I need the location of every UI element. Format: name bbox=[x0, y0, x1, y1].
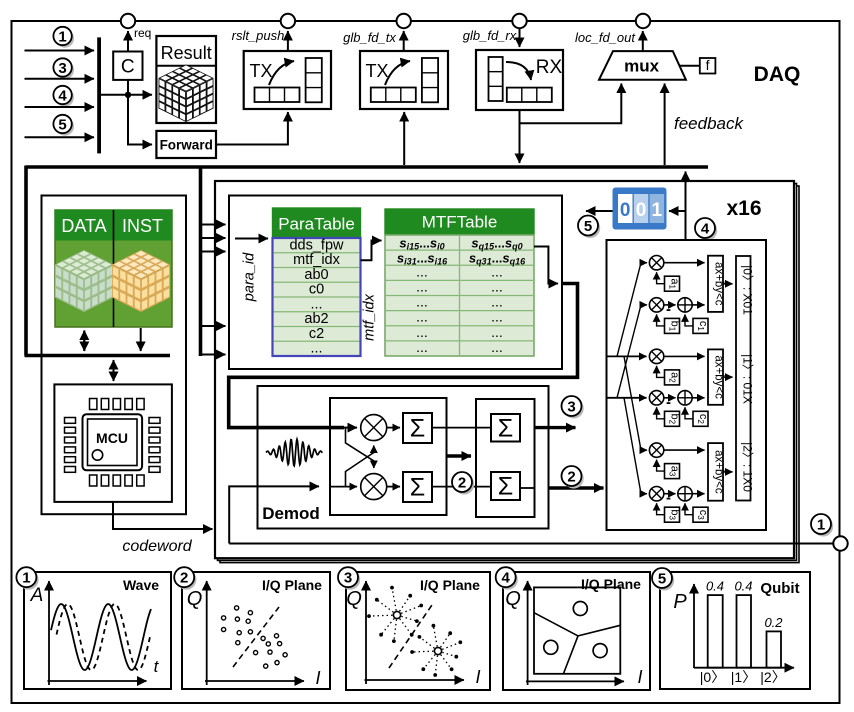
svg-text:...: ... bbox=[416, 263, 428, 279]
svg-text:ax+by<c: ax+by<c bbox=[713, 450, 725, 494]
svg-text:ax+by<c: ax+by<c bbox=[713, 355, 725, 399]
svg-text:Σ: Σ bbox=[410, 474, 425, 502]
svg-text:2: 2 bbox=[180, 570, 188, 587]
svg-text:ParaTable: ParaTable bbox=[278, 215, 355, 234]
svg-text:mux: mux bbox=[624, 57, 660, 76]
svg-text:I/Q Plane: I/Q Plane bbox=[581, 576, 641, 592]
svg-text:|0〉: |0〉 bbox=[700, 669, 725, 685]
svg-text:1: 1 bbox=[22, 570, 30, 587]
svg-text:codeword: codeword bbox=[122, 538, 192, 555]
svg-text:4: 4 bbox=[58, 87, 67, 104]
svg-text:Result: Result bbox=[161, 43, 212, 63]
svg-text:3: 3 bbox=[567, 398, 575, 415]
svg-text:f: f bbox=[706, 57, 710, 73]
svg-text:5: 5 bbox=[658, 570, 666, 587]
svg-text:...: ... bbox=[416, 294, 428, 310]
svg-text:Wave: Wave bbox=[123, 577, 159, 593]
svg-text:C: C bbox=[121, 57, 135, 78]
svg-text:I: I bbox=[315, 668, 320, 688]
svg-text:Q: Q bbox=[505, 588, 521, 610]
svg-text:2: 2 bbox=[567, 468, 575, 485]
svg-text:para_id: para_id bbox=[242, 252, 258, 302]
svg-text:DATA: DATA bbox=[61, 216, 106, 236]
svg-text:Σ: Σ bbox=[410, 415, 425, 443]
svg-text:c0: c0 bbox=[309, 282, 324, 298]
svg-text:rslt_push: rslt_push bbox=[232, 28, 285, 43]
svg-text:Demod: Demod bbox=[262, 504, 320, 523]
svg-text:glb_fd_tx: glb_fd_tx bbox=[343, 30, 396, 45]
svg-text:5: 5 bbox=[58, 116, 66, 133]
svg-text:1: 1 bbox=[58, 28, 66, 45]
svg-text:1: 1 bbox=[817, 516, 825, 533]
svg-text:DAQ: DAQ bbox=[754, 63, 801, 86]
svg-text:|2〉: 1X0: |2〉: 1X0 bbox=[740, 442, 754, 492]
svg-text:Q: Q bbox=[346, 588, 362, 610]
svg-text:x16: x16 bbox=[726, 197, 761, 220]
svg-text:0.2: 0.2 bbox=[764, 615, 783, 630]
svg-text:5: 5 bbox=[584, 218, 592, 235]
svg-text:TX: TX bbox=[365, 61, 388, 81]
svg-text:mtf_idx: mtf_idx bbox=[362, 293, 378, 340]
svg-text:0.4: 0.4 bbox=[734, 579, 752, 594]
svg-text:3: 3 bbox=[344, 570, 352, 587]
svg-text:4: 4 bbox=[502, 570, 511, 587]
svg-text:1: 1 bbox=[652, 200, 663, 221]
svg-text:...: ... bbox=[491, 294, 503, 310]
svg-text:0.4: 0.4 bbox=[706, 579, 724, 594]
svg-text:-: - bbox=[666, 394, 671, 411]
svg-text:mtf_idx: mtf_idx bbox=[293, 252, 340, 268]
svg-text:2: 2 bbox=[458, 474, 466, 491]
svg-text:...: ... bbox=[416, 309, 428, 325]
svg-text:...: ... bbox=[491, 263, 503, 279]
svg-text:0: 0 bbox=[636, 200, 647, 221]
svg-text:|2〉: |2〉 bbox=[760, 669, 785, 685]
svg-text:|1〉: 01X: |1〉: 01X bbox=[740, 354, 754, 404]
svg-text:0: 0 bbox=[620, 200, 631, 221]
svg-text:ab2: ab2 bbox=[304, 311, 328, 327]
svg-text:...: ... bbox=[491, 309, 503, 325]
svg-text:dds_fpw: dds_fpw bbox=[289, 237, 344, 253]
svg-text:|0〉: X01: |0〉: X01 bbox=[740, 265, 754, 315]
svg-text:ax+by<c: ax+by<c bbox=[713, 262, 725, 306]
svg-text:3: 3 bbox=[58, 60, 66, 77]
svg-text:ab0: ab0 bbox=[304, 267, 328, 283]
svg-text:-: - bbox=[666, 301, 671, 318]
svg-text:req: req bbox=[134, 26, 151, 40]
svg-text:|1〉: |1〉 bbox=[731, 669, 756, 685]
svg-text:Q: Q bbox=[187, 588, 203, 610]
svg-text:P: P bbox=[673, 591, 687, 613]
svg-text:MCU: MCU bbox=[96, 430, 128, 446]
svg-text:...: ... bbox=[310, 296, 322, 312]
svg-text:INST: INST bbox=[122, 216, 163, 236]
svg-text:...: ... bbox=[491, 339, 503, 355]
svg-text:Σ: Σ bbox=[498, 414, 513, 442]
svg-text:loc_fd_out: loc_fd_out bbox=[575, 30, 636, 45]
svg-text:glb_fd_rx: glb_fd_rx bbox=[463, 28, 517, 43]
svg-text:TX: TX bbox=[249, 61, 272, 81]
svg-text:MTFTable: MTFTable bbox=[422, 213, 498, 232]
svg-text:Qubit: Qubit bbox=[760, 580, 799, 597]
svg-text:Forward: Forward bbox=[160, 138, 213, 153]
svg-text:...: ... bbox=[416, 324, 428, 340]
svg-text:I/Q Plane: I/Q Plane bbox=[262, 577, 322, 593]
svg-text:...: ... bbox=[491, 324, 503, 340]
svg-text:...: ... bbox=[416, 278, 428, 294]
svg-text:-: - bbox=[666, 490, 671, 507]
svg-text:feedback: feedback bbox=[674, 114, 744, 133]
svg-text:RX: RX bbox=[536, 57, 563, 78]
svg-text:...: ... bbox=[310, 341, 322, 357]
svg-text:Σ: Σ bbox=[498, 473, 513, 501]
svg-text:I/Q Plane: I/Q Plane bbox=[420, 577, 480, 593]
svg-text:...: ... bbox=[491, 278, 503, 294]
svg-text:4: 4 bbox=[701, 220, 710, 237]
svg-text:I: I bbox=[475, 667, 480, 687]
svg-text:...: ... bbox=[416, 339, 428, 355]
svg-text:A: A bbox=[30, 585, 44, 606]
svg-text:I: I bbox=[637, 667, 642, 687]
svg-text:c2: c2 bbox=[309, 326, 324, 342]
